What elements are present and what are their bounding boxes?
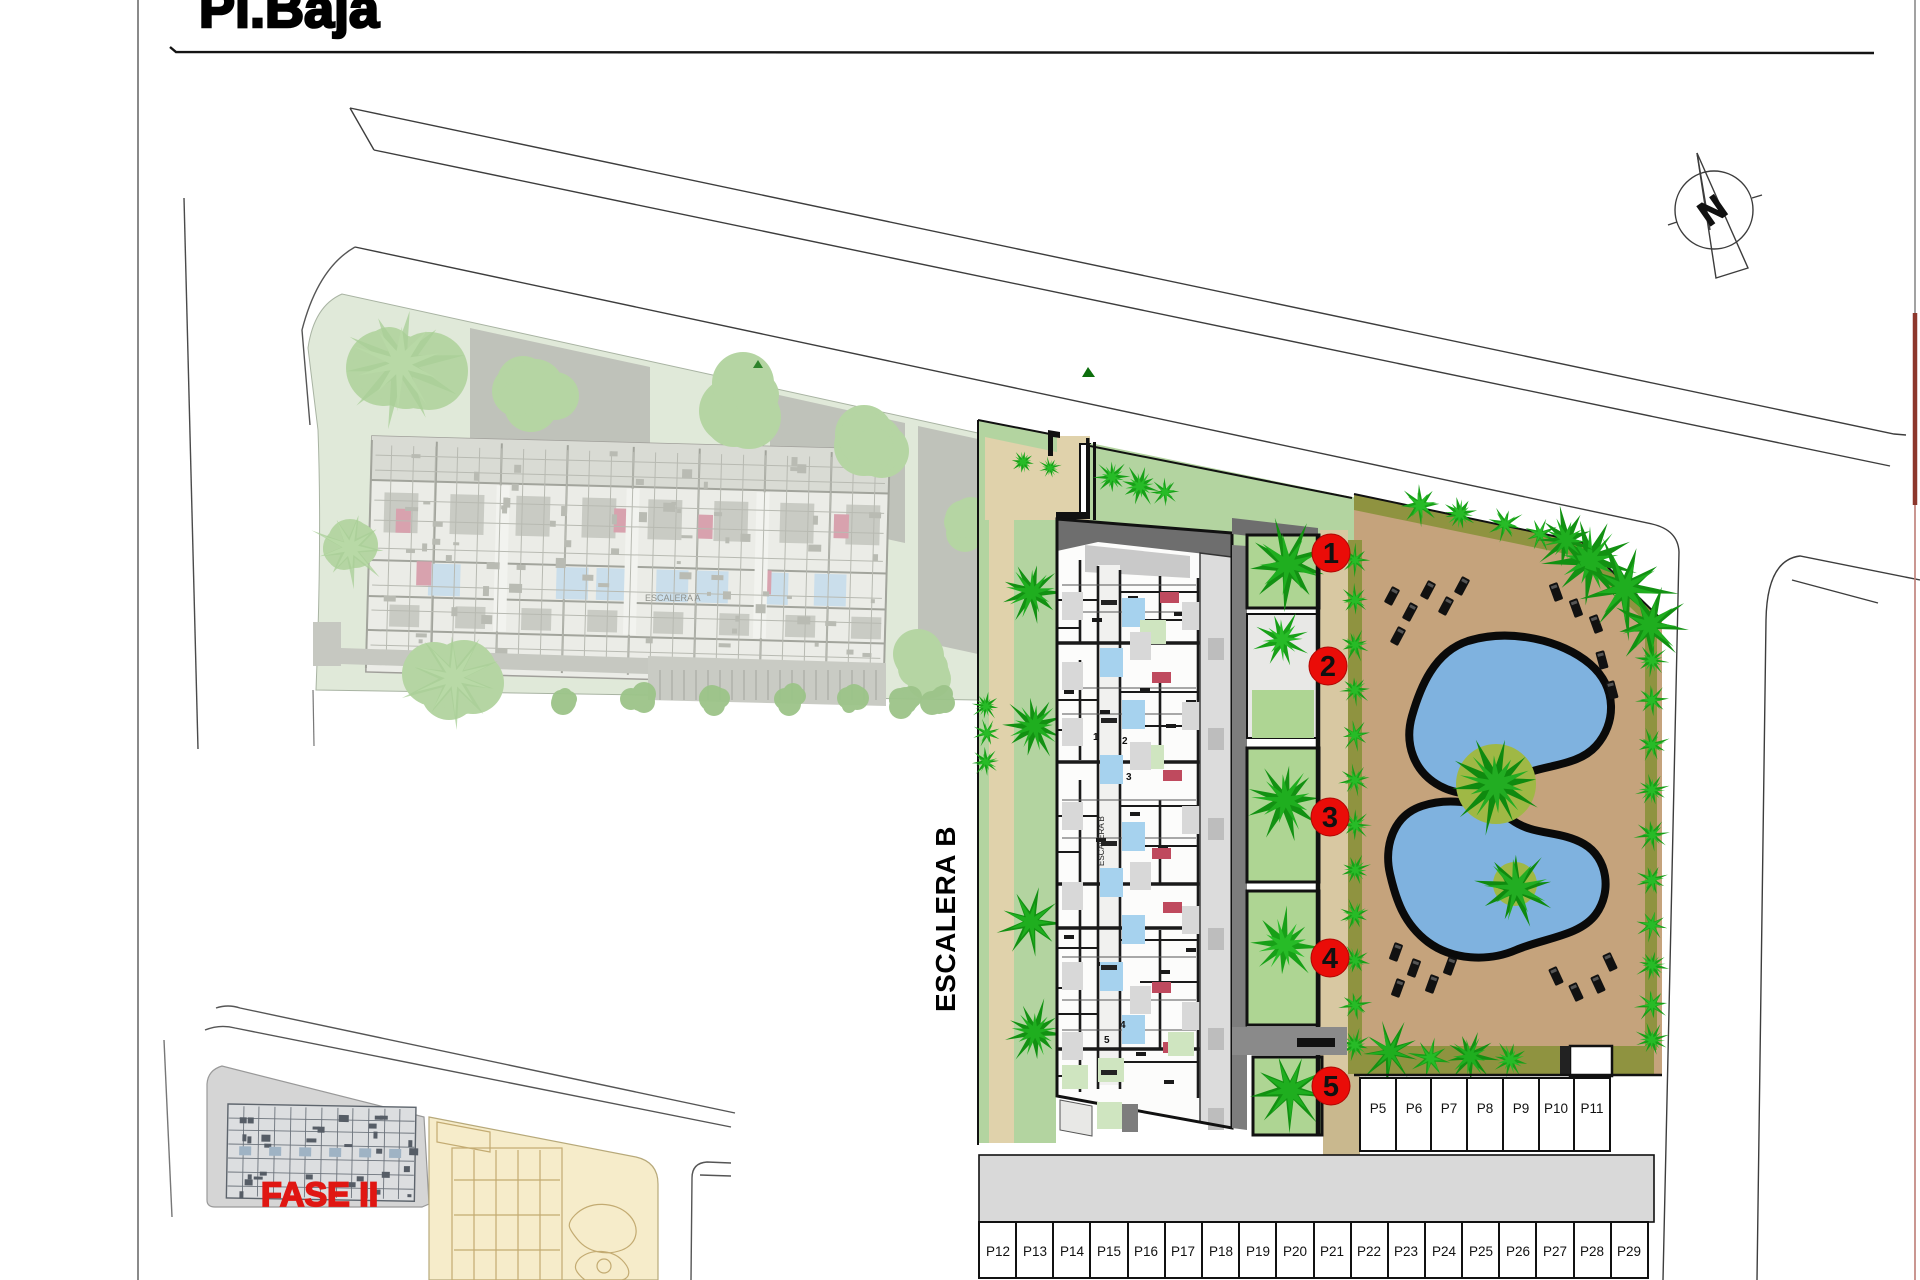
svg-text:P23: P23 [1394, 1244, 1418, 1259]
svg-text:P17: P17 [1171, 1244, 1195, 1259]
svg-text:P20: P20 [1283, 1244, 1307, 1259]
svg-text:1: 1 [1323, 538, 1339, 570]
svg-text:P25: P25 [1469, 1244, 1493, 1259]
svg-text:P16: P16 [1134, 1244, 1158, 1259]
svg-text:P9: P9 [1513, 1101, 1530, 1116]
svg-text:3: 3 [1322, 802, 1338, 834]
svg-text:P13: P13 [1023, 1244, 1047, 1259]
svg-text:4: 4 [1322, 943, 1338, 975]
svg-text:P12: P12 [986, 1244, 1010, 1259]
svg-text:P27: P27 [1543, 1244, 1567, 1259]
svg-text:ESCALERA B: ESCALERA B [1097, 816, 1106, 866]
svg-text:P11: P11 [1580, 1101, 1603, 1116]
svg-text:P19: P19 [1246, 1244, 1270, 1259]
svg-text:P6: P6 [1406, 1101, 1423, 1116]
svg-text:P15: P15 [1097, 1244, 1121, 1259]
svg-text:4: 4 [1120, 1020, 1126, 1031]
svg-text:P29: P29 [1617, 1244, 1641, 1259]
svg-text:P8: P8 [1477, 1101, 1494, 1116]
svg-text:P28: P28 [1580, 1244, 1604, 1259]
svg-text:3: 3 [1126, 772, 1132, 783]
svg-text:5: 5 [1323, 1071, 1339, 1103]
svg-text:2: 2 [1122, 736, 1128, 747]
svg-text:P14: P14 [1060, 1244, 1085, 1259]
svg-text:P21: P21 [1320, 1244, 1344, 1259]
svg-text:ESCALERA B: ESCALERA B [930, 826, 961, 1012]
svg-text:P24: P24 [1432, 1244, 1457, 1259]
svg-text:P5: P5 [1370, 1101, 1387, 1116]
svg-text:1: 1 [1093, 732, 1099, 743]
svg-text:P18: P18 [1209, 1244, 1233, 1259]
svg-text:P26: P26 [1506, 1244, 1530, 1259]
svg-text:2: 2 [1320, 651, 1336, 683]
svg-text:P7: P7 [1441, 1101, 1458, 1116]
svg-text:FASE II: FASE II [261, 1176, 378, 1214]
svg-text:Pl.Baja: Pl.Baja [199, 0, 380, 39]
svg-text:P22: P22 [1357, 1244, 1381, 1259]
svg-text:ESCALERA A: ESCALERA A [645, 593, 701, 603]
svg-text:5: 5 [1104, 1035, 1110, 1046]
svg-text:P10: P10 [1544, 1101, 1568, 1116]
